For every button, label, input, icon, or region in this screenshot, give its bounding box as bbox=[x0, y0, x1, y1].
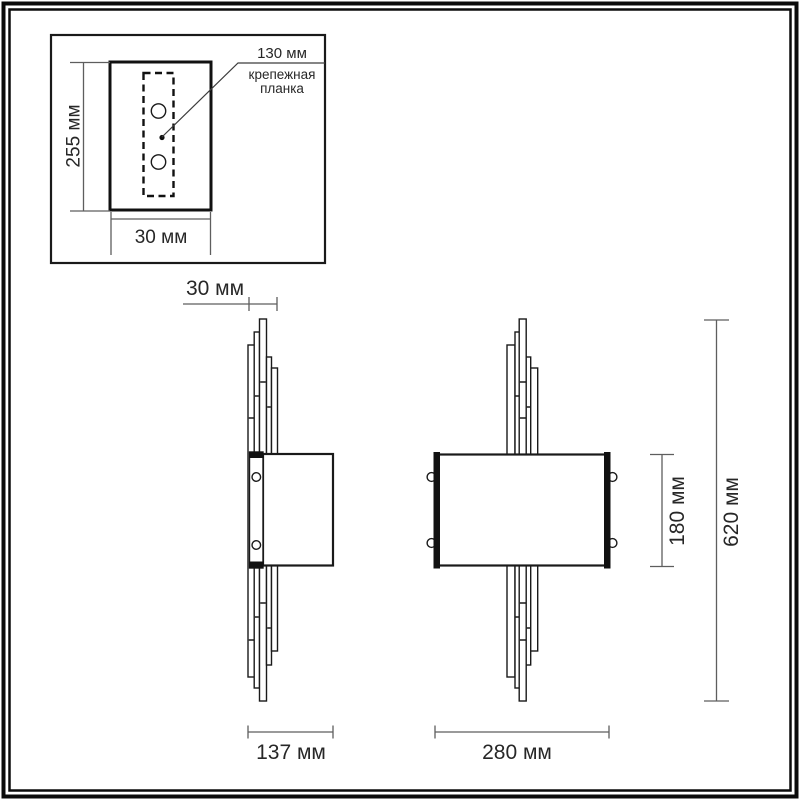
side-depth-label: 30 мм bbox=[186, 277, 244, 300]
plate-height-label: 255 мм bbox=[64, 104, 85, 167]
dimension-diagram: 30 мм 137 мм 280 мм 180 мм 620 мм 130 мм… bbox=[0, 0, 800, 800]
mounting-plate-inset: 130 мм крепежная планка 255 мм 30 мм bbox=[51, 35, 325, 263]
plate-width-label: 30 мм bbox=[135, 227, 188, 248]
bracket-hole-bottom bbox=[151, 155, 165, 169]
bracket-hole-top bbox=[151, 104, 165, 118]
side-backplate-cap-bottom bbox=[249, 562, 264, 569]
callout-value-label: 130 мм bbox=[257, 45, 307, 62]
side-backplate bbox=[250, 452, 264, 568]
shade-height-label: 180 мм bbox=[666, 476, 689, 546]
front-shade bbox=[437, 455, 607, 566]
side-backplate-cap-top bbox=[249, 452, 264, 459]
side-screw-hole-bottom bbox=[252, 541, 261, 550]
front-shade-right-bar bbox=[604, 452, 611, 569]
side-view bbox=[248, 319, 333, 701]
side-screw-hole-top bbox=[252, 473, 261, 482]
side-width-label: 137 мм bbox=[256, 741, 326, 764]
front-shade-left-bar bbox=[434, 452, 441, 569]
side-shade bbox=[263, 454, 333, 566]
callout-name-line1: крепежная bbox=[249, 67, 316, 82]
diagram-svg: 30 мм 137 мм 280 мм 180 мм 620 мм 130 мм… bbox=[0, 0, 800, 800]
front-width-label: 280 мм bbox=[482, 741, 552, 764]
front-width-dim-line bbox=[435, 726, 609, 739]
front-view bbox=[427, 319, 617, 701]
callout-name-line2: планка bbox=[260, 81, 304, 96]
side-width-dim-line bbox=[248, 726, 333, 739]
total-height-label: 620 мм bbox=[720, 477, 743, 547]
